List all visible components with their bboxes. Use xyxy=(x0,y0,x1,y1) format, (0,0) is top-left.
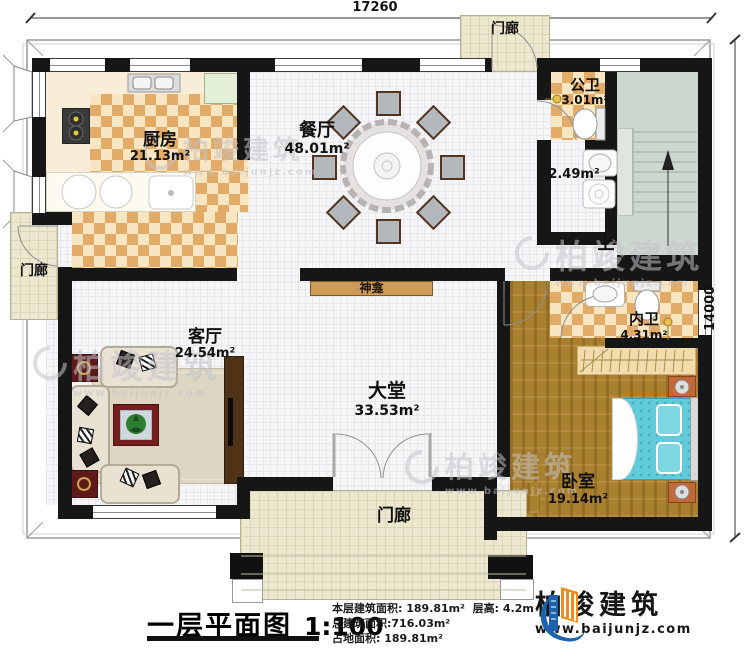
dining-chair xyxy=(440,155,465,180)
hall-area: 33.53m² xyxy=(350,404,424,419)
kitchen-area: 21.13m² xyxy=(120,150,200,164)
ensuite-label: 内卫 xyxy=(618,312,670,328)
info-footprint: 占地面积: 189.81m² xyxy=(332,631,534,646)
floor-plan-canvas: 厨房 21.13m² 餐厅 48.01m² 公卫 3.01m² 2.49m² 上… xyxy=(0,0,750,652)
coffee-table-glass xyxy=(120,410,152,440)
wardrobe xyxy=(577,346,696,375)
ensuite-basin-counter xyxy=(585,282,625,307)
porch-top-label: 门廊 xyxy=(463,22,547,37)
kitchen-checker-rug-2 xyxy=(196,172,248,212)
info-total-area: 总建筑面积:716.03m² xyxy=(332,616,534,631)
bedroom-label: 卧室 xyxy=(540,474,616,492)
nightstand-bottom xyxy=(668,482,696,503)
kitchen-label: 厨房 xyxy=(120,132,200,150)
dining-label: 餐厅 xyxy=(282,122,352,141)
company-logo: 柏竣建筑 www.baijunjz.com xyxy=(535,583,692,637)
dining-chair xyxy=(376,219,401,244)
tv-cabinet xyxy=(224,356,244,484)
info-block: 本层建筑面积: 189.81m² 层高: 4.2m 总建筑面积:716.03m²… xyxy=(332,601,534,646)
hall-label: 大堂 xyxy=(350,382,424,402)
corner-table-top xyxy=(70,354,98,382)
bed-pillow xyxy=(656,404,682,436)
dining-chair xyxy=(312,155,337,180)
porch-pillar xyxy=(230,553,263,579)
tv-screen xyxy=(228,398,233,446)
dimension-top: 17260 xyxy=(340,1,410,15)
sofa-pillow xyxy=(77,427,94,444)
info-floor-height: 层高: 4.2m xyxy=(473,602,534,615)
shrine-label: 神龛 xyxy=(310,282,433,295)
living-area: 24.54m² xyxy=(162,347,248,361)
stairs-up-label: 上 xyxy=(593,236,619,254)
corner-table-bottom xyxy=(70,470,98,498)
ensuite-area: 4.31m² xyxy=(615,329,673,342)
kitchen-checker-rug-3 xyxy=(72,212,238,269)
porch-pillar-base xyxy=(232,579,263,603)
stove xyxy=(62,108,90,144)
porch-pillar xyxy=(488,555,533,579)
fridge xyxy=(204,73,238,104)
bedroom-area: 19.14m² xyxy=(535,493,621,507)
dimension-right: 14000 xyxy=(704,270,722,346)
kitchen-counter xyxy=(46,172,196,212)
stairs-side-strip xyxy=(617,128,633,216)
dining-chair xyxy=(376,91,401,116)
living-label: 客厅 xyxy=(162,329,248,347)
porch-bottom-label: 门廊 xyxy=(354,508,434,526)
bed-pillow xyxy=(656,442,682,474)
public-wc-label: 公卫 xyxy=(560,78,610,94)
info-floor-area: 本层建筑面积: 189.81m² xyxy=(332,602,465,615)
public-wc-area: 3.01m² xyxy=(556,94,614,107)
logo-icon xyxy=(535,583,591,643)
nightstand-top xyxy=(668,376,696,397)
porch-pillar-base xyxy=(500,579,534,600)
sofa-bottom xyxy=(100,464,180,504)
title-underline xyxy=(147,636,319,641)
porch-left-label: 门廊 xyxy=(12,264,56,279)
dining-area: 48.01m² xyxy=(282,142,352,157)
laundry-area: 2.49m² xyxy=(548,168,600,182)
